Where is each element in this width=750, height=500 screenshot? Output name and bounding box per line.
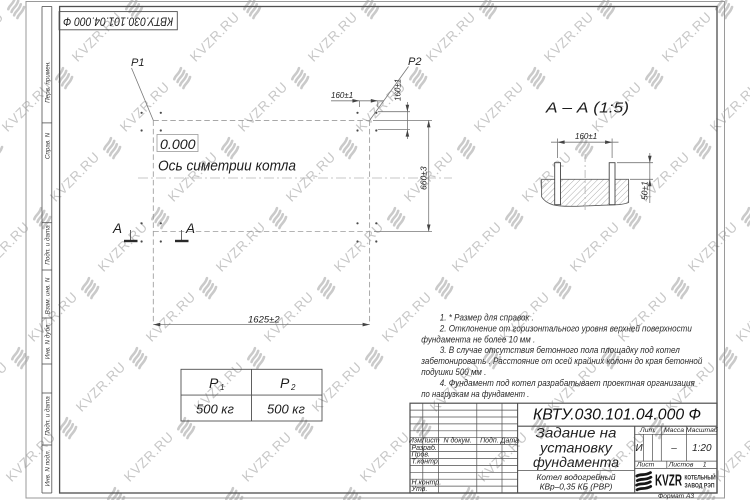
svg-text:Лит.: Лит. [639, 427, 656, 434]
svg-text:Ось симетрии котла: Ось симетрии котла [158, 159, 296, 175]
svg-text:Т.контр.: Т.контр. [412, 459, 440, 466]
svg-text:Утв.: Утв. [411, 486, 428, 493]
svg-text:KVZR.RU: KVZR.RU [305, 9, 360, 64]
svg-text:160±1: 160±1 [394, 79, 403, 101]
svg-text:Подп.: Подп. [480, 437, 499, 445]
svg-text:Масштаб: Масштаб [686, 426, 719, 434]
svg-text:KVZR.RU: KVZR.RU [0, 219, 33, 274]
svg-text:KVZR.RU: KVZR.RU [239, 429, 294, 484]
svg-text:фундамента: фундамента [533, 454, 619, 470]
svg-text:Инв. N подл.: Инв. N подл. [44, 450, 52, 487]
svg-text:ЗАВОД РЭП: ЗАВОД РЭП [685, 483, 715, 490]
svg-text:KVZR.RU: KVZR.RU [357, 429, 412, 484]
svg-text:2: 2 [290, 383, 296, 392]
svg-text:2. Отклонение от горизонтал: 2. Отклонение от горизонтального уровня … [439, 323, 692, 333]
svg-text:Задание на: Задание на [536, 425, 617, 441]
svg-text:забетонировать . Расстояние: забетонировать . Расстояние от осей край… [420, 356, 702, 366]
svg-text:Масса: Масса [664, 427, 684, 434]
svg-text:KVZR.RU: KVZR.RU [423, 9, 478, 64]
svg-text:KVZR.RU: KVZR.RU [541, 9, 596, 64]
svg-text:KVZR.RU: KVZR.RU [659, 9, 714, 64]
svg-text:Лист: Лист [636, 462, 655, 469]
svg-text:Лист: Лист [421, 438, 440, 445]
svg-text:1: 1 [703, 462, 707, 469]
svg-text:KVZR.RU: KVZR.RU [95, 219, 150, 274]
svg-text:N докум.: N докум. [443, 437, 471, 445]
svg-text:500 кг: 500 кг [196, 402, 234, 417]
svg-text:KVZR.RU: KVZR.RU [143, 289, 198, 344]
svg-text:KVZR.RU: KVZR.RU [25, 289, 80, 344]
svg-text:КВТУ.030.101.04.000 Ф: КВТУ.030.101.04.000 Ф [63, 15, 173, 29]
svg-text:KVZR.RU: KVZR.RU [707, 79, 750, 134]
svg-text:Разраб.: Разраб. [412, 444, 437, 452]
svg-text:Котел водогрейный: Котел водогрейный [537, 472, 616, 482]
svg-text:4. Фундамент под котел раз: 4. Фундамент под котел разрабатывает про… [440, 378, 695, 388]
svg-text:Дата: Дата [500, 438, 520, 445]
svg-text:KVZR.RU: KVZR.RU [615, 289, 670, 344]
svg-text:KVZR.RU: KVZR.RU [117, 79, 172, 134]
svg-text:А: А [112, 221, 122, 236]
svg-text:KVZR.RU: KVZR.RU [0, 359, 11, 414]
svg-text:3. В случае отсутствия бет: 3. В случае отсутствия бетонного пола пл… [440, 345, 681, 355]
svg-text:Р2: Р2 [408, 56, 421, 68]
svg-text:KVZR.RU: KVZR.RU [283, 149, 338, 204]
svg-text:KVZR.RU: KVZR.RU [73, 359, 128, 414]
svg-text:фундамента не более 10 м: фундамента не более 10 мм . [421, 334, 535, 344]
svg-text:KVZR.RU: KVZR.RU [567, 219, 622, 274]
svg-text:KVZR.RU: KVZR.RU [213, 219, 268, 274]
svg-text:KVZR.RU: KVZR.RU [165, 149, 220, 204]
svg-text:160±1: 160±1 [331, 91, 353, 100]
svg-text:Взам. инв. N: Взам. инв. N [45, 277, 52, 314]
svg-text:КВр–0,35 КБ (РВР): КВр–0,35 КБ (РВР) [540, 482, 613, 492]
svg-text:Р: Р [209, 375, 219, 391]
svg-text:KVZR.RU: KVZR.RU [47, 149, 102, 204]
svg-text:1625±2: 1625±2 [248, 315, 280, 326]
svg-text:КВТУ.030.101.04.000 Ф: КВТУ.030.101.04.000 Ф [533, 406, 701, 423]
svg-text:Справ. N: Справ. N [45, 132, 52, 159]
svg-text:Перв. примен.: Перв. примен. [45, 61, 52, 103]
svg-text:500 кг: 500 кг [267, 402, 305, 417]
svg-text:подушки 500 мм .: подушки 500 мм . [421, 367, 486, 377]
svg-text:по нагрузкам на фундамент .: по нагрузкам на фундамент . [421, 389, 529, 399]
svg-text:1. * Размер для справок .: 1. * Размер для справок . [440, 313, 534, 323]
svg-text:Листов: Листов [668, 462, 694, 469]
svg-text:KVZR: KVZR [655, 473, 682, 490]
svg-text:КОТЕЛЬНЫЙ: КОТЕЛЬНЫЙ [685, 473, 716, 482]
svg-text:KVZR.RU: KVZR.RU [733, 289, 750, 344]
svg-text:Р: Р [280, 375, 290, 391]
svg-text:А – А (1:5): А – А (1:5) [545, 100, 629, 117]
svg-text:KVZR.RU: KVZR.RU [121, 429, 176, 484]
svg-text:А: А [185, 221, 195, 236]
svg-text:50±1: 50±1 [640, 181, 650, 200]
svg-text:Инв. N дубл.: Инв. N дубл. [44, 323, 52, 359]
svg-text:KVZR.RU: KVZR.RU [309, 359, 364, 414]
svg-text:0.000: 0.000 [160, 137, 196, 153]
svg-text:160±1: 160±1 [575, 132, 597, 141]
svg-text:Подп. и дата: Подп. и дата [44, 396, 52, 436]
svg-text:–: – [670, 443, 677, 454]
svg-text:KVZR.RU: KVZR.RU [449, 219, 504, 274]
svg-text:KVZR.RU: KVZR.RU [685, 219, 740, 274]
svg-text:Р1: Р1 [131, 57, 144, 69]
svg-text:KVZR.RU: KVZR.RU [331, 219, 386, 274]
svg-text:1: 1 [220, 383, 224, 392]
svg-text:1:20: 1:20 [692, 443, 712, 454]
svg-text:Формат А3: Формат А3 [658, 493, 694, 500]
svg-text:И: И [636, 443, 644, 454]
svg-text:Подп. и дата: Подп. и дата [44, 225, 52, 265]
svg-text:KVZR.RU: KVZR.RU [0, 9, 7, 64]
svg-text:KVZR.RU: KVZR.RU [235, 79, 290, 134]
svg-text:660±3: 660±3 [419, 166, 429, 190]
svg-text:KVZR.RU: KVZR.RU [471, 79, 526, 134]
svg-text:KVZR.RU: KVZR.RU [187, 9, 242, 64]
